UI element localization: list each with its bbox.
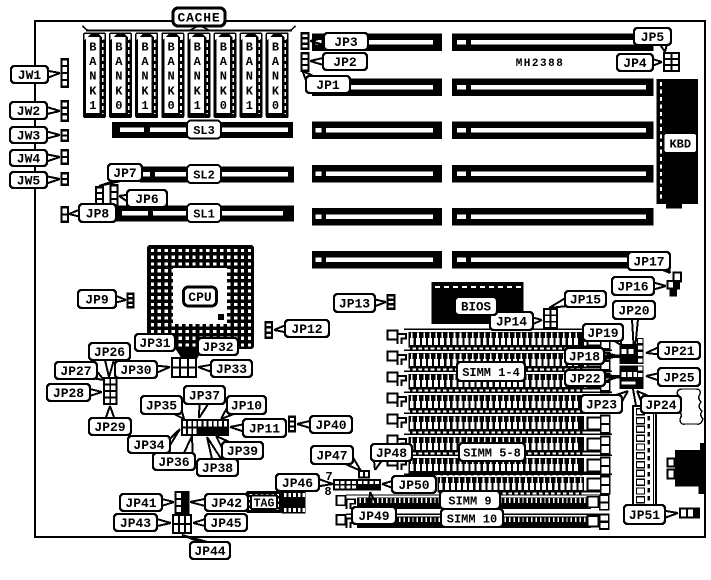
svg-text:JP40: JP40 — [315, 418, 346, 433]
svg-text:SL3: SL3 — [193, 124, 215, 138]
svg-text:K: K — [194, 84, 202, 98]
svg-text:JP43: JP43 — [120, 516, 151, 531]
svg-text:B: B — [141, 41, 148, 55]
svg-text:K: K — [141, 84, 149, 98]
svg-text:JP16: JP16 — [617, 279, 648, 294]
svg-text:A: A — [115, 55, 123, 69]
svg-text:JP8: JP8 — [86, 206, 110, 221]
svg-text:JP38: JP38 — [202, 461, 233, 476]
svg-text:JP13: JP13 — [339, 296, 370, 311]
svg-text:8: 8 — [324, 485, 331, 499]
svg-text:A: A — [194, 55, 202, 69]
svg-text:SIMM 1-4: SIMM 1-4 — [462, 366, 520, 380]
svg-text:JP49: JP49 — [358, 509, 389, 524]
svg-text:N: N — [194, 70, 201, 84]
svg-text:SIMM 5-8: SIMM 5-8 — [463, 446, 521, 460]
svg-text:N: N — [272, 70, 279, 84]
svg-text:N: N — [115, 70, 122, 84]
svg-text:K: K — [220, 84, 228, 98]
svg-text:JP25: JP25 — [663, 370, 694, 385]
svg-text:JP1: JP1 — [316, 78, 340, 93]
svg-text:JP41: JP41 — [125, 496, 156, 511]
svg-text:B: B — [246, 41, 253, 55]
svg-text:K: K — [89, 84, 97, 98]
svg-text:JP37: JP37 — [189, 388, 220, 403]
svg-text:A: A — [167, 55, 175, 69]
svg-text:JP10: JP10 — [231, 398, 262, 413]
svg-text:JP3: JP3 — [334, 35, 358, 50]
svg-text:1: 1 — [141, 99, 148, 113]
svg-text:JP26: JP26 — [94, 345, 125, 360]
svg-text:N: N — [220, 70, 227, 84]
svg-text:N: N — [89, 70, 96, 84]
svg-text:JP21: JP21 — [663, 344, 694, 359]
svg-text:JP7: JP7 — [113, 166, 136, 181]
svg-text:A: A — [272, 55, 280, 69]
svg-text:N: N — [141, 70, 148, 84]
svg-text:A: A — [141, 55, 149, 69]
svg-text:JW4: JW4 — [17, 151, 41, 166]
svg-text:7: 7 — [325, 470, 332, 484]
svg-text:JW5: JW5 — [17, 173, 41, 188]
svg-text:B: B — [272, 41, 279, 55]
svg-text:JP29: JP29 — [94, 420, 125, 435]
svg-text:K: K — [246, 84, 254, 98]
svg-text:JP42: JP42 — [211, 496, 242, 511]
svg-text:JP23: JP23 — [586, 397, 617, 412]
svg-text:0: 0 — [115, 99, 122, 113]
svg-text:JP50: JP50 — [398, 478, 429, 493]
svg-text:JP30: JP30 — [120, 363, 151, 378]
svg-text:JW3: JW3 — [17, 128, 41, 143]
svg-text:JP48: JP48 — [376, 446, 407, 461]
svg-text:JP44: JP44 — [194, 544, 225, 559]
svg-text:JP17: JP17 — [633, 254, 664, 269]
svg-text:B: B — [167, 41, 174, 55]
svg-text:CPU: CPU — [188, 290, 211, 305]
svg-text:JP18: JP18 — [569, 349, 600, 364]
svg-text:TAG: TAG — [254, 498, 275, 511]
svg-text:KBD: KBD — [669, 137, 691, 151]
svg-text:JP15: JP15 — [570, 292, 601, 307]
svg-text:JP6: JP6 — [135, 192, 159, 207]
svg-text:1: 1 — [89, 99, 96, 113]
svg-text:0: 0 — [220, 99, 227, 113]
svg-text:CACHE: CACHE — [177, 10, 220, 25]
svg-text:JP4: JP4 — [623, 56, 647, 71]
svg-text:JP39: JP39 — [227, 444, 258, 459]
svg-text:JP33: JP33 — [216, 362, 247, 377]
svg-text:JP2: JP2 — [333, 55, 357, 70]
svg-text:JP51: JP51 — [629, 508, 660, 523]
svg-text:JP5: JP5 — [641, 30, 665, 45]
svg-text:1: 1 — [194, 99, 201, 113]
svg-text:JP35: JP35 — [146, 398, 177, 413]
svg-text:JP14: JP14 — [496, 314, 527, 329]
svg-text:K: K — [167, 84, 175, 98]
svg-text:JP47: JP47 — [316, 448, 347, 463]
svg-text:SL2: SL2 — [193, 168, 215, 182]
svg-text:JP28: JP28 — [53, 386, 84, 401]
svg-text:MH2388: MH2388 — [516, 58, 565, 70]
svg-text:JP9: JP9 — [85, 292, 109, 307]
svg-text:JP27: JP27 — [60, 364, 91, 379]
svg-text:JW2: JW2 — [17, 104, 41, 119]
svg-text:JW1: JW1 — [18, 68, 42, 83]
svg-text:JP32: JP32 — [202, 340, 233, 355]
svg-text:JP46: JP46 — [282, 476, 313, 491]
svg-text:JP24: JP24 — [645, 398, 676, 413]
svg-text:N: N — [246, 70, 253, 84]
svg-text:JP22: JP22 — [569, 371, 600, 386]
svg-text:JP12: JP12 — [291, 322, 322, 337]
svg-text:B: B — [220, 41, 227, 55]
svg-text:JP34: JP34 — [133, 438, 164, 453]
svg-text:B: B — [115, 41, 122, 55]
svg-text:A: A — [220, 55, 228, 69]
svg-text:BIOS: BIOS — [461, 300, 492, 314]
svg-text:K: K — [272, 84, 280, 98]
svg-text:0: 0 — [167, 99, 174, 113]
svg-text:JP20: JP20 — [618, 303, 649, 318]
svg-text:B: B — [194, 41, 201, 55]
svg-text:SIMM 9: SIMM 9 — [448, 494, 491, 508]
svg-text:SL1: SL1 — [193, 207, 215, 221]
svg-text:K: K — [115, 84, 123, 98]
svg-text:N: N — [167, 70, 174, 84]
svg-text:JP31: JP31 — [139, 336, 170, 351]
svg-text:JP19: JP19 — [587, 326, 618, 341]
svg-text:JP45: JP45 — [210, 516, 241, 531]
svg-text:B: B — [89, 41, 96, 55]
svg-text:A: A — [246, 55, 254, 69]
svg-text:SIMM 10: SIMM 10 — [447, 512, 497, 526]
svg-text:JP36: JP36 — [158, 455, 189, 470]
svg-text:A: A — [89, 55, 97, 69]
svg-text:0: 0 — [272, 99, 279, 113]
svg-text:1: 1 — [246, 99, 253, 113]
svg-text:JP11: JP11 — [249, 421, 280, 436]
